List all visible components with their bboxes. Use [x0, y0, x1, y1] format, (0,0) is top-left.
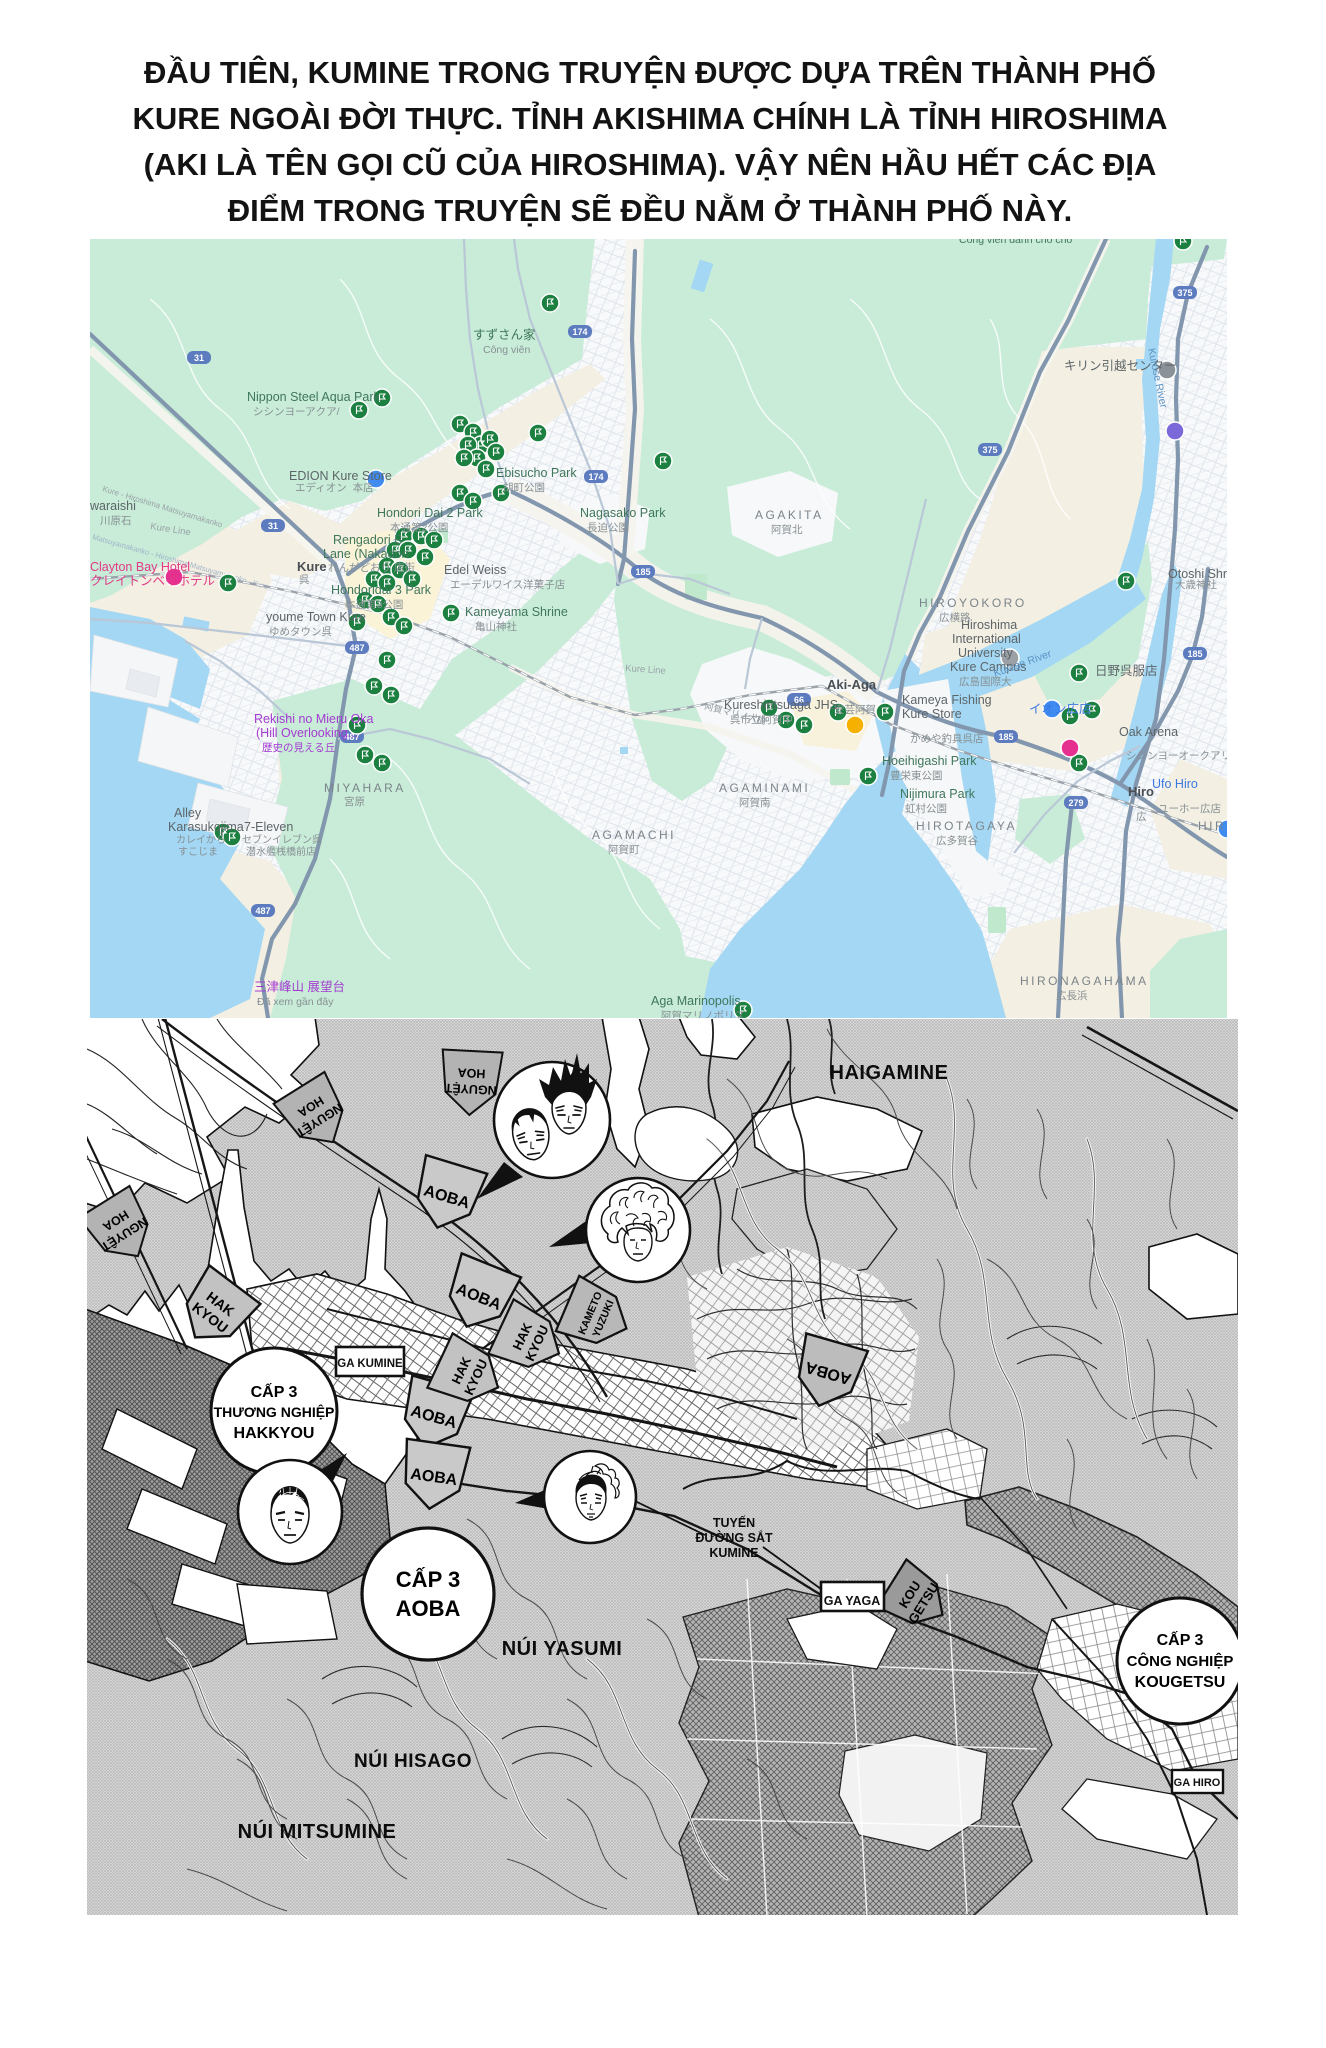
svg-text:呉: 呉: [299, 574, 310, 586]
svg-text:カレイから: カレイから: [176, 834, 226, 846]
svg-text:Công viên dành cho chó: Công viên dành cho chó: [959, 239, 1072, 246]
svg-text:日野呉服店: 日野呉服店: [1095, 664, 1158, 678]
svg-text:AGAMACHI: AGAMACHI: [592, 828, 676, 842]
svg-text:川原石: 川原石: [100, 515, 132, 527]
svg-text:Công viên: Công viên: [483, 344, 530, 356]
svg-text:HIRONAGAHAMA: HIRONAGAHAMA: [1020, 974, 1149, 988]
svg-text:かめや釣具呉店: かめや釣具呉店: [910, 732, 984, 745]
svg-text:KUMINE: KUMINE: [709, 1546, 758, 1560]
svg-text:CẤP 3: CẤP 3: [251, 1382, 298, 1401]
svg-text:Nijimura Park: Nijimura Park: [900, 787, 976, 801]
svg-text:阿賀北: 阿賀北: [771, 524, 803, 536]
svg-text:HOA: HOA: [457, 1065, 485, 1080]
svg-text:185: 185: [635, 567, 650, 577]
svg-text:Nagasako Park: Nagasako Park: [580, 506, 666, 520]
svg-text:イオン広店: イオン広店: [1029, 702, 1092, 716]
svg-text:広横路: 広横路: [939, 611, 971, 624]
svg-text:THƯƠNG NGHIỆP: THƯƠNG NGHIỆP: [214, 1403, 335, 1420]
svg-text:れんがどおり 店街: れんがどおり 店街: [328, 561, 415, 574]
svg-text:Ufo Hiro: Ufo Hiro: [1152, 777, 1198, 791]
svg-text:AOBA: AOBA: [396, 1596, 461, 1621]
svg-text:安芸阿賀: 安芸阿賀: [834, 703, 876, 716]
svg-text:MIYAHARA: MIYAHARA: [324, 781, 406, 795]
svg-text:279: 279: [1068, 798, 1083, 808]
svg-text:Oak Arena: Oak Arena: [1119, 725, 1178, 739]
svg-text:ゆめタウン呉: ゆめタウン呉: [269, 626, 332, 638]
svg-text:豊栄東公園: 豊栄東公園: [890, 769, 943, 782]
svg-text:歴史の見える丘: 歴史の見える丘: [262, 742, 335, 754]
svg-text:潜水艦桟橋前店: 潜水艦桟橋前店: [246, 845, 316, 858]
svg-text:亀山神社: 亀山神社: [475, 620, 517, 633]
svg-text:185: 185: [1187, 649, 1202, 659]
svg-text:広多賀谷: 広多賀谷: [936, 834, 978, 847]
svg-text:375: 375: [982, 445, 997, 455]
svg-text:すずさん家: すずさん家: [473, 327, 536, 342]
svg-text:シシンヨーアクア/: シシンヨーアクア/: [253, 406, 340, 418]
svg-text:youme Town Kure: youme Town Kure: [266, 610, 366, 624]
svg-text:胡町公園: 胡町公園: [503, 481, 545, 494]
svg-text:HIROYOKORO: HIROYOKORO: [919, 596, 1027, 610]
svg-text:185: 185: [998, 732, 1013, 742]
svg-text:呉市立阿賀中: 呉市立阿賀中: [730, 713, 793, 726]
svg-text:174: 174: [572, 327, 587, 337]
svg-text:Edel Weiss: Edel Weiss: [444, 563, 506, 577]
svg-text:Alley: Alley: [174, 806, 202, 820]
svg-text:Kure Store: Kure Store: [902, 707, 962, 721]
svg-text:広長浜: 広長浜: [1056, 989, 1088, 1002]
svg-text:GA HIRO: GA HIRO: [1174, 1777, 1221, 1789]
svg-text:HIROS: HIROS: [1198, 819, 1227, 833]
svg-text:HAIGAMINE: HAIGAMINE: [830, 1062, 949, 1084]
svg-text:虹村公園: 虹村公園: [905, 802, 947, 815]
svg-text:広島国際大: 広島国際大: [959, 675, 1012, 688]
svg-text:487: 487: [349, 643, 364, 653]
svg-text:7-Eleven: 7-Eleven: [244, 820, 293, 834]
svg-text:シシンヨーオークアリーナ: シシンヨーオークアリーナ: [1126, 750, 1227, 762]
svg-text:NGUYỆT: NGUYỆT: [444, 1081, 497, 1099]
svg-text:(Hill Overlooking...: (Hill Overlooking...: [256, 726, 358, 740]
svg-text:Hoeihigashi Park: Hoeihigashi Park: [882, 754, 977, 768]
svg-text:CẤP 3: CẤP 3: [396, 1567, 460, 1592]
svg-text:EDION Kure Store: EDION Kure Store: [289, 469, 392, 483]
svg-text:三津峰山 展望台: 三津峰山 展望台: [254, 979, 345, 994]
svg-text:Aki-Aga: Aki-Aga: [827, 677, 877, 692]
svg-text:TUYẾN: TUYẾN: [713, 1515, 755, 1530]
svg-text:Nippon Steel Aqua Park: Nippon Steel Aqua Park: [247, 390, 380, 404]
svg-text:エーデルワイス洋菓子店: エーデルワイス洋菓子店: [450, 578, 565, 591]
svg-text:Hondori Dai 2 Park: Hondori Dai 2 Park: [377, 506, 483, 520]
svg-text:Hondoridai 3 Park: Hondoridai 3 Park: [331, 583, 432, 597]
svg-text:375: 375: [1177, 288, 1192, 298]
svg-text:ĐƯỜNG SẮT: ĐƯỜNG SẮT: [695, 1530, 773, 1545]
svg-text:Kureshiritsuaga JHS: Kureshiritsuaga JHS: [724, 698, 838, 712]
svg-text:KOUGETSU: KOUGETSU: [1135, 1674, 1226, 1691]
svg-text:Rengadori B: Rengadori B: [333, 533, 403, 547]
svg-text:GA YAGA: GA YAGA: [824, 1594, 881, 1608]
svg-text:HAKKYOU: HAKKYOU: [234, 1425, 315, 1442]
svg-text:ユーホー広店: ユーホー広店: [1158, 802, 1221, 815]
svg-text:阿賀南: 阿賀南: [739, 796, 771, 809]
svg-text:AGAKITA: AGAKITA: [755, 508, 824, 522]
svg-text:本通第2公園: 本通第2公園: [390, 521, 448, 534]
svg-text:University: University: [958, 646, 1014, 660]
svg-text:Đã xem gần đây: Đã xem gần đây: [257, 996, 334, 1008]
svg-text:クレイトンベイホテル: クレイトンベイホテル: [90, 574, 215, 588]
svg-text:487: 487: [255, 906, 270, 916]
svg-text:セブンイレブン呉: セブンイレブン呉: [242, 833, 322, 846]
svg-text:CẤP 3: CẤP 3: [1157, 1630, 1204, 1649]
svg-text:すこじま: すこじま: [178, 846, 218, 858]
svg-text:Aga Marinopolis: Aga Marinopolis: [651, 994, 741, 1008]
svg-text:Rekishi no Mieru Oka: Rekishi no Mieru Oka: [254, 712, 374, 726]
svg-text:Karasukojima: Karasukojima: [168, 820, 244, 834]
svg-text:NÚI HISAGO: NÚI HISAGO: [354, 1750, 472, 1772]
svg-text:Kameya Fishing: Kameya Fishing: [902, 693, 992, 707]
svg-text:Kure: Kure: [297, 559, 327, 574]
svg-text:NÚI YASUMI: NÚI YASUMI: [502, 1636, 623, 1660]
svg-text:International: International: [952, 632, 1021, 646]
svg-text:阿賀マリノポリス: 阿賀マリノポリス: [661, 1010, 745, 1018]
svg-text:HIROTAGAYA: HIROTAGAYA: [916, 819, 1017, 833]
svg-text:Lane (Nakadori: Lane (Nakadori: [323, 547, 408, 561]
svg-text:CÔNG NGHIỆP: CÔNG NGHIỆP: [1127, 1652, 1234, 1670]
svg-text:AGAMINAMI: AGAMINAMI: [719, 781, 810, 795]
svg-text:広: 広: [1136, 810, 1147, 823]
svg-text:31: 31: [194, 353, 204, 363]
svg-text:Kameyama Shrine: Kameyama Shrine: [465, 605, 568, 619]
svg-text:GA KUMINE: GA KUMINE: [337, 1358, 403, 1370]
svg-text:174: 174: [588, 472, 603, 482]
svg-text:NÚI MITSUMINE: NÚI MITSUMINE: [238, 1819, 397, 1843]
svg-text:Clayton Bay Hotel: Clayton Bay Hotel: [90, 560, 190, 574]
svg-text:Hiro: Hiro: [1128, 784, 1154, 799]
svg-text:長迫公園: 長迫公園: [587, 521, 629, 534]
svg-text:Ebisucho Park: Ebisucho Park: [496, 466, 577, 480]
svg-text:Otoshi Shrine: Otoshi Shrine: [1168, 567, 1227, 581]
svg-text:31: 31: [268, 521, 278, 531]
svg-text:阿賀町: 阿賀町: [608, 844, 640, 856]
svg-text:宮原: 宮原: [344, 795, 365, 808]
